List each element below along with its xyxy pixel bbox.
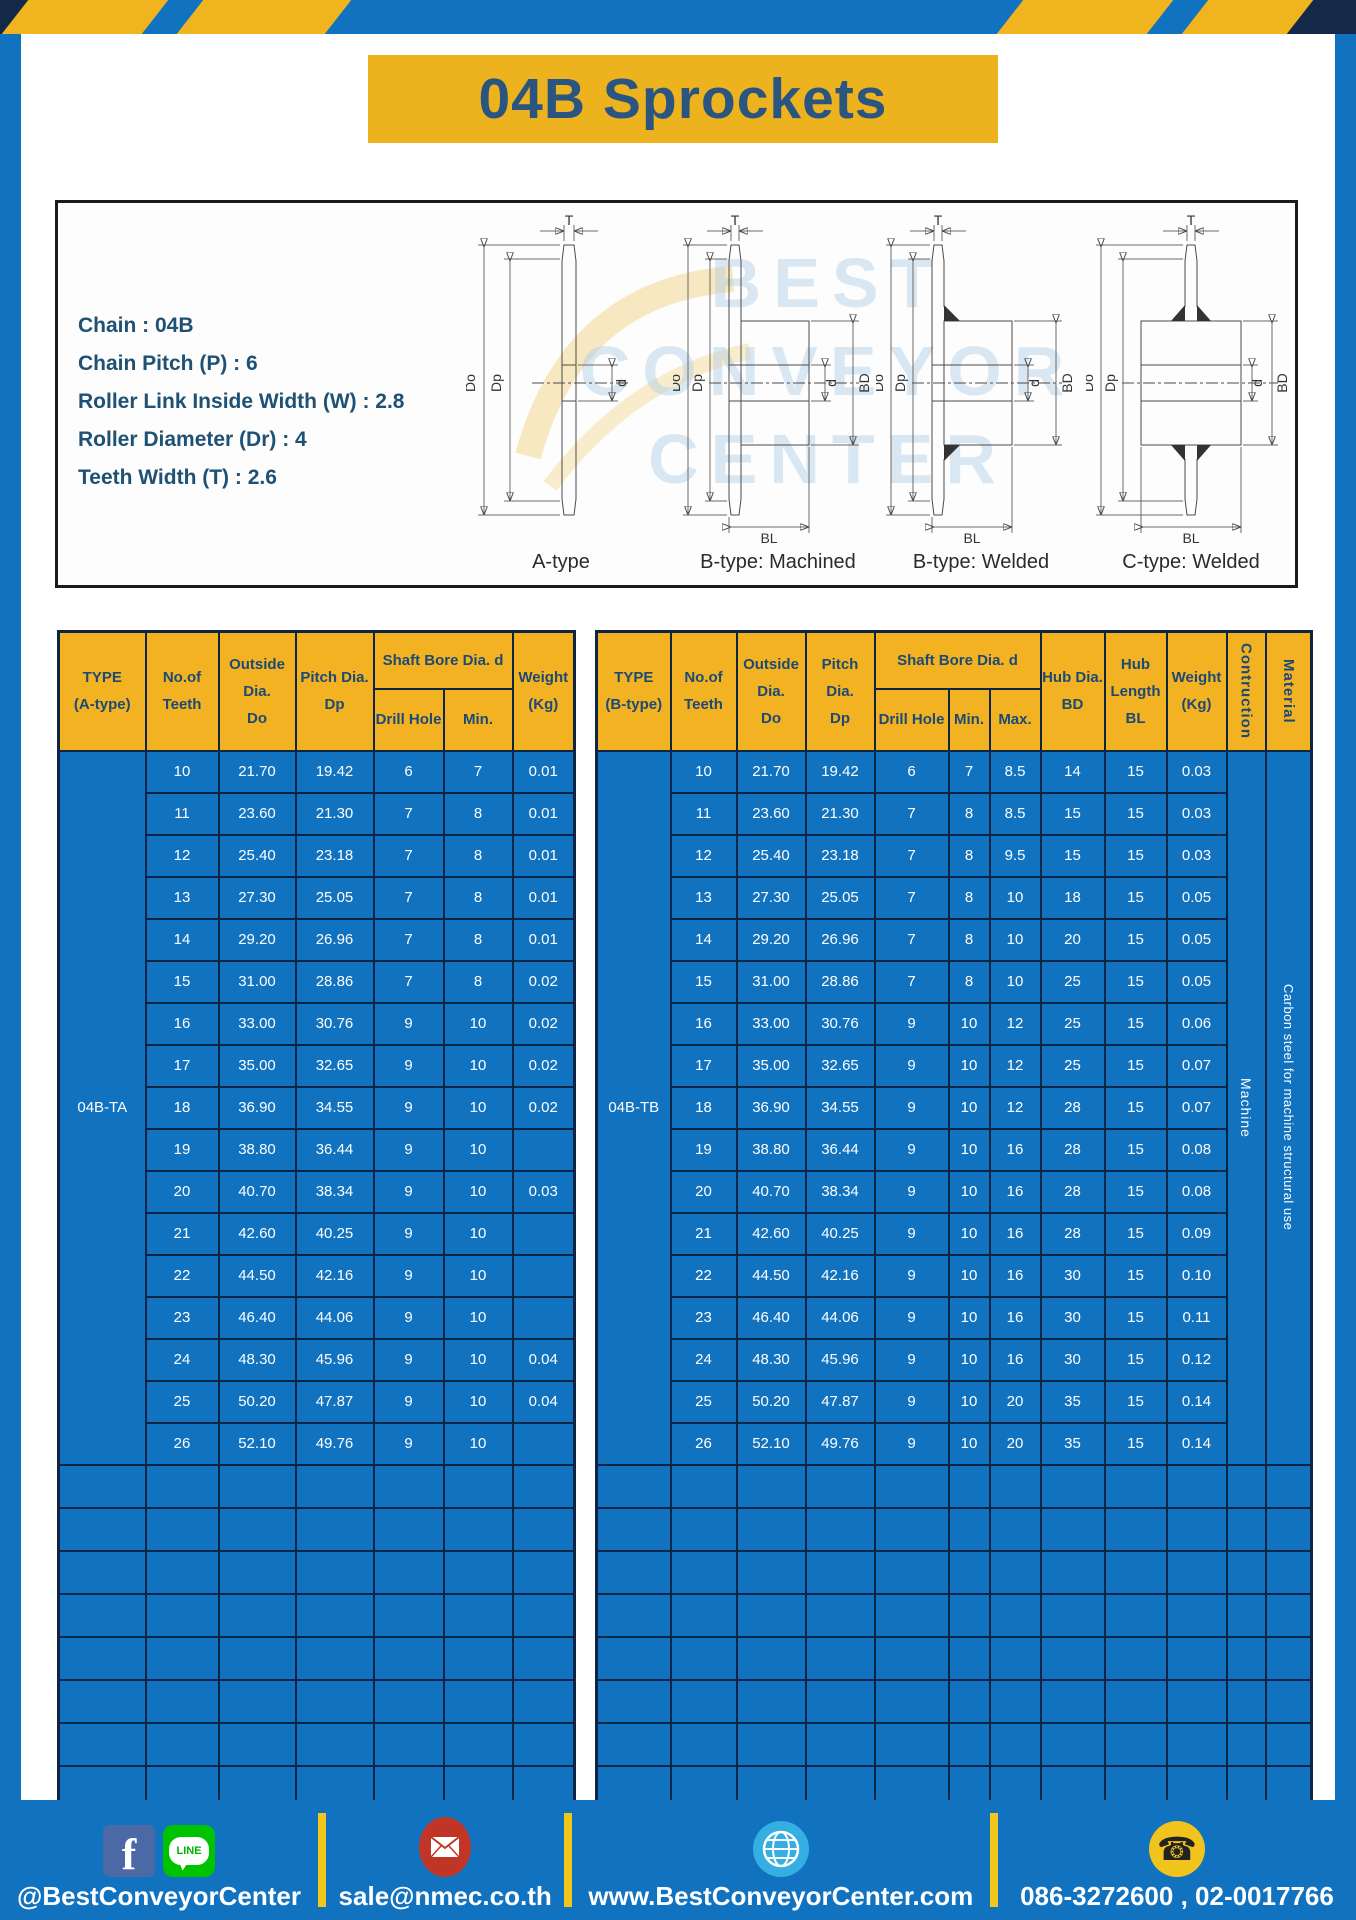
table-row: 2448.3045.969101630150.12 — [597, 1339, 1312, 1381]
data-cell: 10 — [444, 1129, 513, 1171]
empty-cell — [296, 1594, 374, 1637]
empty-cell — [990, 1637, 1041, 1680]
data-cell: 12 — [990, 1087, 1041, 1129]
data-cell: 10 — [949, 1129, 990, 1171]
dim-label-bd: BD — [1059, 373, 1075, 392]
facebook-letter: f — [122, 1833, 137, 1877]
data-cell: 10 — [990, 919, 1041, 961]
empty-cell — [806, 1465, 875, 1508]
data-cell: 46.40 — [737, 1297, 806, 1339]
empty-cell — [444, 1723, 513, 1766]
empty-table-row — [597, 1594, 1312, 1637]
data-cell: 52.10 — [737, 1423, 806, 1465]
empty-cell — [1227, 1723, 1266, 1766]
data-cell: 29.20 — [219, 919, 296, 961]
data-cell: 8 — [444, 877, 513, 919]
empty-cell — [146, 1637, 219, 1680]
data-cell: 0.08 — [1167, 1129, 1227, 1171]
data-cell: 11 — [146, 793, 219, 835]
col-header-teeth: No.of Teeth — [146, 632, 219, 751]
footer-divider — [990, 1813, 998, 1907]
data-cell: 7 — [875, 877, 949, 919]
data-cell: 16 — [146, 1003, 219, 1045]
data-cell: 16 — [990, 1255, 1041, 1297]
data-cell: 9 — [875, 1171, 949, 1213]
data-cell: 28 — [1041, 1087, 1105, 1129]
type-value-cell: 04B-TA — [59, 751, 146, 1465]
data-cell: 23.18 — [296, 835, 374, 877]
data-cell: 10 — [990, 877, 1041, 919]
data-cell: 8 — [444, 835, 513, 877]
data-cell: 31.00 — [219, 961, 296, 1003]
col-header-construction: Contruction — [1227, 632, 1266, 751]
data-cell: 26 — [671, 1423, 737, 1465]
data-cell: 18 — [146, 1087, 219, 1129]
data-cell: 10 — [444, 1045, 513, 1087]
data-cell: 10 — [444, 1171, 513, 1213]
empty-cell — [1041, 1637, 1105, 1680]
data-cell: 0.14 — [1167, 1423, 1227, 1465]
data-cell: 21.30 — [806, 793, 875, 835]
data-cell: 0.07 — [1167, 1087, 1227, 1129]
data-cell: 40.70 — [737, 1171, 806, 1213]
data-cell: 7 — [875, 835, 949, 877]
empty-cell — [597, 1680, 671, 1723]
col-header-min: Min. — [444, 689, 513, 751]
data-cell: 8.5 — [990, 751, 1041, 793]
data-cell: 9 — [374, 1087, 444, 1129]
data-cell: 28 — [1041, 1171, 1105, 1213]
empty-cell — [875, 1551, 949, 1594]
data-cell: 8 — [444, 919, 513, 961]
empty-cell — [737, 1723, 806, 1766]
col-header-hub-len: Hub Length BL — [1105, 632, 1167, 751]
data-cell: 9 — [875, 1087, 949, 1129]
empty-cell — [990, 1594, 1041, 1637]
data-cell: 19 — [671, 1129, 737, 1171]
data-cell: 15 — [1041, 793, 1105, 835]
col-header-hub-dia: Hub Dia. BD — [1041, 632, 1105, 751]
data-cell: 13 — [146, 877, 219, 919]
empty-cell — [513, 1551, 575, 1594]
sprocket-table-b: TYPE (B-type) No.of Teeth Outside Dia. D… — [595, 630, 1313, 1811]
empty-cell — [597, 1551, 671, 1594]
data-cell: 23 — [671, 1297, 737, 1339]
data-cell: 15 — [1105, 919, 1167, 961]
data-cell: 11 — [671, 793, 737, 835]
col-header-outside: Outside Dia. Do — [219, 632, 296, 751]
dim-label-t: T — [934, 215, 943, 228]
data-cell: 30.76 — [806, 1003, 875, 1045]
data-cell: 50.20 — [219, 1381, 296, 1423]
data-cell: 12 — [990, 1045, 1041, 1087]
catalog-page: { "title": "04B Sprockets", "specs": [ "… — [0, 0, 1356, 1920]
empty-cell — [513, 1465, 575, 1508]
data-cell: 0.02 — [513, 961, 575, 1003]
empty-cell — [444, 1594, 513, 1637]
empty-cell — [513, 1680, 575, 1723]
dim-label-d: d — [1249, 379, 1265, 387]
spec-chain-pitch: Chain Pitch (P) : 6 — [78, 345, 404, 383]
globe-icon — [753, 1821, 809, 1877]
data-cell: 0.04 — [513, 1381, 575, 1423]
data-cell: 9 — [875, 1381, 949, 1423]
empty-cell — [875, 1637, 949, 1680]
empty-cell — [875, 1723, 949, 1766]
data-cell: 7 — [875, 793, 949, 835]
empty-cell — [806, 1594, 875, 1637]
empty-cell — [1167, 1723, 1227, 1766]
material-value-cell: Carbon steel for machine structural use — [1266, 751, 1312, 1465]
dim-label-dp: Dp — [1102, 374, 1118, 392]
empty-cell — [1266, 1594, 1312, 1637]
col-header-teeth: No.of Teeth — [671, 632, 737, 751]
data-cell: 35 — [1041, 1423, 1105, 1465]
data-cell: 7 — [949, 751, 990, 793]
data-cell: 0.10 — [1167, 1255, 1227, 1297]
yellow-stripe-1 — [2, 0, 169, 34]
table-row: 1225.4023.18789.515150.03 — [597, 835, 1312, 877]
empty-cell — [146, 1465, 219, 1508]
empty-cell — [597, 1637, 671, 1680]
footer-email-section: sale@nmec.co.th — [327, 1808, 564, 1912]
data-cell: 20 — [671, 1171, 737, 1213]
empty-cell — [219, 1680, 296, 1723]
data-cell: 36.44 — [296, 1129, 374, 1171]
data-cell: 10 — [949, 1171, 990, 1213]
data-cell: 49.76 — [806, 1423, 875, 1465]
empty-cell — [59, 1637, 146, 1680]
data-cell: 25.40 — [737, 835, 806, 877]
spec-teeth-width: Teeth Width (T) : 2.6 — [78, 459, 404, 497]
data-cell: 8 — [949, 919, 990, 961]
empty-cell — [875, 1594, 949, 1637]
phone-glyph: ☎ — [1157, 1833, 1197, 1865]
dim-label-dp: Dp — [689, 374, 705, 392]
table-row: 1938.8036.449101628150.08 — [597, 1129, 1312, 1171]
empty-cell — [219, 1723, 296, 1766]
empty-cell — [1266, 1508, 1312, 1551]
empty-cell — [949, 1465, 990, 1508]
table-row: 1836.9034.559101228150.07 — [597, 1087, 1312, 1129]
data-cell: 49.76 — [296, 1423, 374, 1465]
data-cell: 15 — [1105, 1213, 1167, 1255]
data-cell: 20 — [146, 1171, 219, 1213]
data-cell: 23.60 — [219, 793, 296, 835]
data-cell: 16 — [990, 1339, 1041, 1381]
empty-cell — [1266, 1723, 1312, 1766]
data-cell: 32.65 — [296, 1045, 374, 1087]
page-frame-left — [0, 0, 21, 1920]
empty-cell — [59, 1680, 146, 1723]
empty-cell — [737, 1465, 806, 1508]
data-cell: 36.90 — [219, 1087, 296, 1129]
empty-table-row — [59, 1465, 575, 1508]
empty-cell — [875, 1508, 949, 1551]
yellow-stripe-3 — [997, 0, 1174, 34]
dim-label-bd: BD — [856, 373, 872, 392]
diagram-panel: BEST CONVEYOR CENTER Chain : 04B Chain P… — [55, 200, 1298, 588]
dim-label-bd: BD — [1274, 373, 1290, 392]
data-cell: 47.87 — [296, 1381, 374, 1423]
empty-cell — [444, 1637, 513, 1680]
empty-cell — [1227, 1465, 1266, 1508]
empty-cell — [444, 1680, 513, 1723]
col-header-shaft-bore: Shaft Bore Dia. d — [875, 632, 1041, 689]
data-cell: 10 — [146, 751, 219, 793]
data-cell: 10 — [949, 1297, 990, 1339]
data-cell — [513, 1213, 575, 1255]
data-cell: 22 — [146, 1255, 219, 1297]
data-cell: 48.30 — [219, 1339, 296, 1381]
empty-cell — [1167, 1680, 1227, 1723]
data-cell: 14 — [671, 919, 737, 961]
empty-cell — [374, 1637, 444, 1680]
empty-cell — [990, 1551, 1041, 1594]
empty-cell — [1266, 1551, 1312, 1594]
data-cell: 21.70 — [737, 751, 806, 793]
phone-numbers-text: 086-3272600 , 02-0017766 — [1020, 1881, 1334, 1912]
data-cell: 0.03 — [1167, 751, 1227, 793]
data-cell: 9 — [875, 1045, 949, 1087]
data-cell: 0.14 — [1167, 1381, 1227, 1423]
col-header-pitch: Pitch Dia. Dp — [296, 632, 374, 751]
phone-icon: ☎ — [1149, 1821, 1205, 1877]
col-header-min: Min. — [949, 689, 990, 751]
data-cell: 38.80 — [219, 1129, 296, 1171]
data-cell: 17 — [671, 1045, 737, 1087]
data-cell: 22 — [671, 1255, 737, 1297]
data-cell: 18 — [1041, 877, 1105, 919]
empty-cell — [1167, 1551, 1227, 1594]
empty-cell — [949, 1508, 990, 1551]
data-cell: 40.25 — [806, 1213, 875, 1255]
data-cell: 44.06 — [296, 1297, 374, 1339]
empty-cell — [1227, 1594, 1266, 1637]
empty-cell — [671, 1465, 737, 1508]
empty-cell — [1105, 1508, 1167, 1551]
dim-label-do: Do — [1086, 374, 1096, 392]
empty-cell — [597, 1465, 671, 1508]
data-cell: 10 — [444, 1297, 513, 1339]
table-row: 04B-TA1021.7019.42670.01 — [59, 751, 575, 793]
empty-table-row — [59, 1594, 575, 1637]
empty-cell — [737, 1508, 806, 1551]
data-cell: 8.5 — [990, 793, 1041, 835]
empty-cell — [146, 1508, 219, 1551]
top-decor-band — [0, 0, 1356, 34]
data-cell: 9 — [875, 1339, 949, 1381]
empty-cell — [513, 1508, 575, 1551]
data-cell: 34.55 — [806, 1087, 875, 1129]
social-icons: f LINE — [103, 1825, 215, 1877]
page-frame-right — [1335, 0, 1356, 1920]
dim-label-bl: BL — [1182, 530, 1199, 545]
spec-chain: Chain : 04B — [78, 307, 404, 345]
data-cell: 0.12 — [1167, 1339, 1227, 1381]
empty-cell — [1105, 1637, 1167, 1680]
data-cell: 9 — [374, 1423, 444, 1465]
data-cell: 0.08 — [1167, 1171, 1227, 1213]
data-cell: 21.70 — [219, 751, 296, 793]
data-cell: 25 — [146, 1381, 219, 1423]
data-cell: 32.65 — [806, 1045, 875, 1087]
data-cell: 8 — [949, 793, 990, 835]
empty-cell — [1266, 1680, 1312, 1723]
empty-cell — [806, 1551, 875, 1594]
col-header-pitch: Pitch Dia. Dp — [806, 632, 875, 751]
caption-b-welded: B-type: Welded — [876, 551, 1086, 574]
data-cell: 8 — [949, 835, 990, 877]
data-cell: 26.96 — [806, 919, 875, 961]
dim-label-d: d — [1026, 379, 1042, 387]
data-cell: 15 — [1105, 1171, 1167, 1213]
data-cell: 9 — [374, 1381, 444, 1423]
data-cell: 0.07 — [1167, 1045, 1227, 1087]
data-cell: 20 — [990, 1381, 1041, 1423]
data-cell: 46.40 — [219, 1297, 296, 1339]
data-cell: 15 — [1105, 1003, 1167, 1045]
data-cell: 7 — [875, 961, 949, 1003]
data-cell: 6 — [875, 751, 949, 793]
line-label: LINE — [176, 1845, 201, 1857]
data-cell: 16 — [990, 1129, 1041, 1171]
empty-cell — [875, 1465, 949, 1508]
data-cell: 19 — [146, 1129, 219, 1171]
data-cell: 34.55 — [296, 1087, 374, 1129]
data-cell: 7 — [374, 961, 444, 1003]
empty-cell — [949, 1637, 990, 1680]
empty-cell — [513, 1594, 575, 1637]
data-cell: 40.70 — [219, 1171, 296, 1213]
empty-cell — [1105, 1551, 1167, 1594]
data-cell: 25.05 — [806, 877, 875, 919]
b-type-welded-drawing: T Do Dp d BD BL — [876, 215, 1086, 545]
empty-cell — [296, 1508, 374, 1551]
data-cell: 24 — [146, 1339, 219, 1381]
table-row: 1327.3025.05781018150.05 — [597, 877, 1312, 919]
col-header-type: TYPE (A-type) — [59, 632, 146, 751]
empty-cell — [296, 1551, 374, 1594]
table-row: 04B-TB1021.7019.42678.514150.03MachineCa… — [597, 751, 1312, 793]
empty-cell — [671, 1551, 737, 1594]
empty-cell — [374, 1594, 444, 1637]
data-cell: 45.96 — [296, 1339, 374, 1381]
data-cell: 12 — [671, 835, 737, 877]
dim-label-d: d — [613, 379, 629, 387]
data-cell: 0.05 — [1167, 961, 1227, 1003]
empty-cell — [296, 1723, 374, 1766]
footer-divider — [318, 1813, 326, 1907]
empty-cell — [1041, 1594, 1105, 1637]
data-cell: 16 — [990, 1297, 1041, 1339]
a-type-drawing: T Do Dp d — [466, 215, 656, 545]
data-cell: 7 — [374, 877, 444, 919]
dim-label-dp: Dp — [892, 374, 908, 392]
data-cell: 21 — [671, 1213, 737, 1255]
data-cell: 10 — [444, 1255, 513, 1297]
table-a-body: 04B-TA1021.7019.42670.011123.6021.30780.… — [59, 751, 575, 1810]
type-value-cell: 04B-TB — [597, 751, 671, 1465]
data-cell: 23.18 — [806, 835, 875, 877]
data-cell: 10 — [444, 1087, 513, 1129]
empty-table-row — [597, 1723, 1312, 1766]
empty-cell — [1227, 1637, 1266, 1680]
footer-bar: f LINE @BestConveyorCenter sale@nmec.co.… — [0, 1800, 1356, 1920]
chain-specs: Chain : 04B Chain Pitch (P) : 6 Roller L… — [78, 307, 404, 497]
data-cell: 50.20 — [737, 1381, 806, 1423]
data-cell: 9 — [374, 1297, 444, 1339]
data-cell: 10 — [444, 1003, 513, 1045]
data-cell: 10 — [990, 961, 1041, 1003]
empty-cell — [806, 1680, 875, 1723]
facebook-icon: f — [103, 1825, 155, 1877]
col-header-outside: Outside Dia. Do — [737, 632, 806, 751]
empty-cell — [949, 1551, 990, 1594]
empty-cell — [374, 1508, 444, 1551]
empty-cell — [444, 1465, 513, 1508]
empty-cell — [1041, 1723, 1105, 1766]
data-cell: 36.44 — [806, 1129, 875, 1171]
empty-cell — [444, 1508, 513, 1551]
empty-cell — [59, 1723, 146, 1766]
data-cell: 0.03 — [1167, 835, 1227, 877]
data-cell: 0.09 — [1167, 1213, 1227, 1255]
data-cell: 10 — [949, 1423, 990, 1465]
data-cell: 42.16 — [296, 1255, 374, 1297]
data-cell: 25 — [1041, 1045, 1105, 1087]
data-cell: 35 — [1041, 1381, 1105, 1423]
empty-table-row — [597, 1680, 1312, 1723]
data-cell: 0.01 — [513, 835, 575, 877]
data-cell: 7 — [374, 835, 444, 877]
caption-a-type: A-type — [456, 551, 666, 574]
empty-cell — [219, 1594, 296, 1637]
data-cell: 52.10 — [219, 1423, 296, 1465]
data-cell: 25 — [671, 1381, 737, 1423]
data-cell: 40.25 — [296, 1213, 374, 1255]
empty-cell — [374, 1465, 444, 1508]
data-cell: 15 — [1105, 961, 1167, 1003]
data-cell: 0.05 — [1167, 919, 1227, 961]
data-cell: 7 — [875, 919, 949, 961]
empty-cell — [737, 1594, 806, 1637]
email-text: sale@nmec.co.th — [339, 1881, 552, 1912]
data-cell: 15 — [1105, 1423, 1167, 1465]
empty-cell — [296, 1465, 374, 1508]
data-cell: 24 — [671, 1339, 737, 1381]
email-icon — [419, 1817, 471, 1877]
empty-cell — [374, 1723, 444, 1766]
data-cell: 9 — [374, 1255, 444, 1297]
empty-cell — [1105, 1594, 1167, 1637]
dim-label-bl: BL — [963, 530, 980, 545]
data-cell: 9 — [374, 1339, 444, 1381]
spec-roller-width: Roller Link Inside Width (W) : 2.8 — [78, 383, 404, 421]
data-cell: 17 — [146, 1045, 219, 1087]
data-cell: 15 — [1105, 1255, 1167, 1297]
dim-label-do: Do — [673, 374, 683, 392]
data-cell: 7 — [444, 751, 513, 793]
empty-cell — [1105, 1680, 1167, 1723]
empty-cell — [806, 1723, 875, 1766]
data-cell: 31.00 — [737, 961, 806, 1003]
data-cell: 15 — [1105, 1045, 1167, 1087]
data-cell: 28.86 — [806, 961, 875, 1003]
data-cell: 36.90 — [737, 1087, 806, 1129]
data-cell: 10 — [444, 1213, 513, 1255]
footer-website-section: www.BestConveyorCenter.com — [572, 1808, 989, 1912]
